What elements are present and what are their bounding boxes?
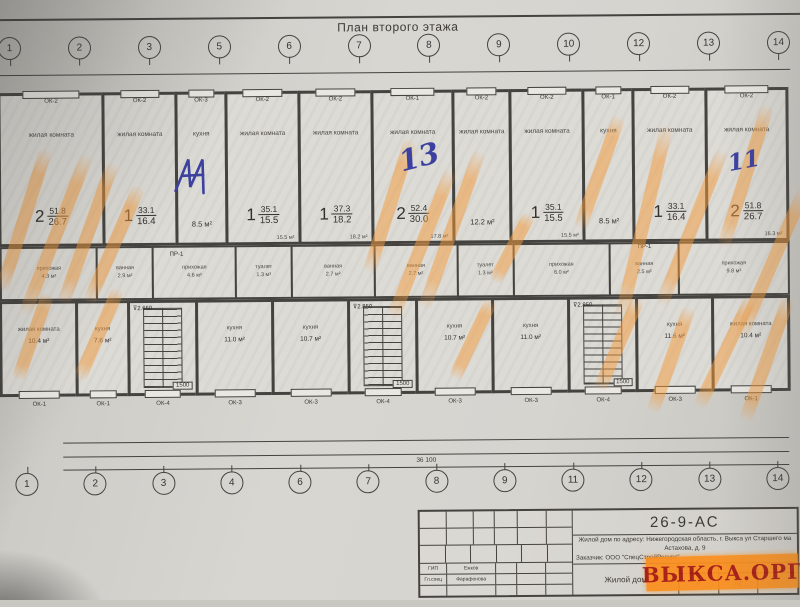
room-cell: ОК-2 жилая комната 1 35.115.5 15.5 м² bbox=[509, 89, 586, 244]
bottom-cell: кухня 11.0 м² ОК-3 bbox=[195, 299, 275, 396]
room-cell: ОК-2 жилая комната 1 33.116.4 bbox=[631, 88, 708, 243]
window-label: ОК-2 bbox=[256, 97, 270, 103]
room-sub-area: 18.2 м² bbox=[350, 234, 368, 240]
dimension-value bbox=[214, 63, 216, 73]
column-header bbox=[445, 546, 471, 562]
room-area: 10.7 м² bbox=[444, 335, 465, 342]
room-label: кухня bbox=[427, 322, 483, 331]
window-label: ОК-1 bbox=[601, 94, 615, 100]
room-sub-area: 16.3 м² bbox=[765, 231, 783, 237]
axis-row-bottom: 1234678911121314 bbox=[15, 467, 789, 496]
window bbox=[19, 391, 60, 399]
column-header bbox=[471, 546, 497, 562]
room-label: жилая комната bbox=[723, 320, 779, 329]
service-room-label: туалет1.3 м² bbox=[477, 263, 494, 279]
lintel-mark: ПР-1 bbox=[638, 244, 652, 250]
window-label: ОК-2 bbox=[540, 95, 554, 101]
dimension-value bbox=[260, 431, 262, 441]
column-header bbox=[547, 545, 572, 561]
general-notes bbox=[0, 502, 412, 505]
room-sub-area: 15.5 м² bbox=[561, 233, 579, 239]
service-room-label: прихожая4.6 м² bbox=[182, 265, 207, 281]
axis-circle: 4 bbox=[220, 471, 243, 494]
window-label: ОК-2 bbox=[663, 94, 677, 100]
room-area-note: 12.2 м² bbox=[470, 217, 494, 226]
window-label: ОК-1 bbox=[3, 402, 76, 409]
axis-circle: 2 bbox=[68, 36, 91, 59]
bottom-cell: кухня 11.6 м² ОК-3 bbox=[635, 296, 715, 393]
name: Фарафонова bbox=[447, 574, 496, 585]
dimension-value bbox=[392, 430, 394, 440]
room-label: жилая комната bbox=[108, 130, 172, 140]
dimension-value bbox=[357, 62, 359, 72]
role: ГИП bbox=[420, 563, 447, 573]
dimension-value bbox=[429, 62, 431, 72]
window-label: ОК-1 bbox=[79, 401, 128, 407]
dimension-value bbox=[788, 59, 790, 69]
note-line bbox=[0, 502, 412, 505]
window bbox=[655, 386, 696, 394]
watermark-badge: ВЫКСА.ОРГ bbox=[646, 554, 799, 592]
service-room-cell: прихожая4.3 м² bbox=[0, 246, 98, 301]
bottom-cell: ⊽2.850 1500 ОК-4 bbox=[347, 298, 419, 395]
dimension-value bbox=[285, 63, 287, 73]
role: Гл.спец bbox=[420, 574, 447, 584]
window-label: ОК-3 bbox=[495, 398, 568, 405]
kitchens-stairs-row: жилая комната 10.4 м² ОК-1 кухня 7.6 м² … bbox=[2, 295, 791, 397]
bottom-cell: жилая комната 10.4 м² ОК-1 bbox=[711, 295, 791, 392]
window bbox=[466, 87, 497, 95]
window bbox=[731, 385, 772, 393]
room-area: 11.0 м² bbox=[224, 337, 245, 344]
dimension-value bbox=[178, 64, 180, 74]
window-label: ОК-2 bbox=[44, 99, 58, 105]
dimension-value bbox=[716, 59, 718, 69]
landing-elevation: 1500 bbox=[393, 380, 412, 388]
room-areas: 1 37.318.2 bbox=[319, 203, 353, 225]
dimension-value bbox=[642, 442, 644, 452]
dimension-value bbox=[721, 427, 723, 437]
dimension-value bbox=[393, 62, 395, 72]
window-label: ОК-3 bbox=[199, 400, 272, 407]
window-label: ОК-4 bbox=[571, 397, 636, 404]
window bbox=[650, 86, 689, 94]
dimension-value bbox=[321, 63, 323, 73]
window-label: ОК-4 bbox=[131, 401, 196, 408]
room-areas: 2 52.430.0 bbox=[396, 203, 430, 225]
room-label: жилая комната bbox=[11, 326, 67, 335]
room-label: кухня bbox=[647, 321, 703, 330]
dimension-value bbox=[326, 431, 328, 441]
service-room-label: ванная2.7 м² bbox=[324, 264, 342, 280]
room-cell: ОК-1 кухня 8.5 м² bbox=[582, 88, 636, 242]
room-cell: ОК-2 жилая комната 1 37.318.2 18.2 м² bbox=[297, 90, 374, 245]
room-areas: 1 33.116.4 bbox=[123, 205, 157, 227]
signature-rows: ГИП Ежков Гл.спец Фарафонова bbox=[420, 562, 572, 596]
dimension-value bbox=[280, 445, 282, 455]
dimension-value bbox=[497, 443, 499, 453]
dimension-value bbox=[142, 64, 144, 74]
window bbox=[435, 387, 476, 395]
dimension-value bbox=[754, 427, 756, 437]
room-area: 10.7 м² bbox=[300, 336, 321, 343]
dimension-value bbox=[63, 433, 65, 443]
window-label: ОК-3 bbox=[639, 397, 712, 404]
elevation-mark: ⊽2.850 bbox=[353, 303, 372, 310]
drawing-sheet: План второго этажа 1235678910121314 ОК-2… bbox=[0, 0, 800, 607]
window bbox=[725, 85, 769, 93]
dimension-value bbox=[63, 447, 65, 457]
room-label: жилая комната bbox=[638, 126, 702, 136]
dimension-value bbox=[129, 432, 131, 442]
note-line bbox=[0, 502, 412, 505]
dimension-value bbox=[425, 430, 427, 440]
dimension-value bbox=[622, 428, 624, 438]
dimension-value bbox=[787, 441, 789, 451]
bottom-cell: ⊽2.650 1500 ОК-4 bbox=[127, 300, 199, 397]
pen-mark-11: 11 bbox=[726, 145, 762, 177]
document-number: 26-9-АС bbox=[573, 509, 797, 536]
service-room-cell: ванная2.7 м² bbox=[291, 244, 376, 299]
window-label: ОК-2 bbox=[329, 96, 343, 102]
service-room-label: ванная2.9 м² bbox=[116, 265, 134, 281]
room-area: 10.4 м² bbox=[740, 333, 761, 340]
room-label: жилая комната bbox=[19, 130, 83, 140]
room-label: жилая комната bbox=[715, 125, 779, 135]
landing-elevation: 1500 bbox=[613, 378, 632, 386]
axis-circle: 7 bbox=[347, 34, 370, 57]
axis-circle: 7 bbox=[357, 470, 380, 493]
dimension-value bbox=[162, 432, 164, 442]
axis-circle: 10 bbox=[557, 33, 580, 56]
window bbox=[23, 91, 80, 99]
column-header bbox=[522, 545, 548, 561]
dimension-value bbox=[195, 432, 197, 442]
axis-row-top: 1235678910121314 bbox=[0, 31, 790, 60]
dimension-value bbox=[688, 428, 690, 438]
service-room-label: прихожая9.8 м² bbox=[722, 261, 747, 277]
room-label: кухня bbox=[75, 325, 131, 334]
note-line bbox=[0, 502, 412, 505]
dimension-value bbox=[590, 428, 592, 438]
dimension-value bbox=[96, 432, 98, 442]
note-line bbox=[0, 502, 412, 505]
dimension-value bbox=[537, 61, 539, 71]
room-cell: ОК-2 жилая комната 2 51.826.7 bbox=[0, 92, 106, 247]
room-areas: 1 35.115.5 bbox=[531, 202, 565, 224]
dimension-value bbox=[680, 60, 682, 70]
axis-circle: 13 bbox=[697, 31, 720, 54]
window bbox=[316, 88, 355, 96]
dimension-value bbox=[501, 61, 503, 71]
axis-circle: 12 bbox=[627, 32, 650, 55]
apartment-rooms-row: ОК-2 жилая комната 2 51.826.7 ОК-2 жилая… bbox=[0, 87, 789, 247]
service-room-cell: прихожая4.6 м² bbox=[152, 245, 237, 300]
axis-circle: 5 bbox=[208, 35, 231, 58]
dimension-value bbox=[70, 65, 72, 75]
dimension-value bbox=[557, 429, 559, 439]
axis-circle: 2 bbox=[84, 472, 107, 495]
room-area: 10.4 м² bbox=[28, 338, 49, 345]
room-label: кухня bbox=[503, 322, 559, 331]
bottom-cell: кухня 11.0 м² ОК-3 bbox=[491, 297, 571, 394]
dimension-value bbox=[752, 59, 754, 69]
column-header bbox=[420, 546, 446, 562]
window-label: ОК-3 bbox=[194, 98, 208, 104]
dimension-value bbox=[524, 429, 526, 439]
lintel-mark: ПР-1 bbox=[170, 252, 184, 258]
dimension-value bbox=[715, 442, 717, 452]
name bbox=[447, 585, 496, 596]
room-area: 7.6 м² bbox=[94, 338, 112, 345]
room-label: кухня bbox=[206, 324, 262, 333]
axis-circle: 8 bbox=[417, 34, 440, 57]
note-line bbox=[0, 502, 412, 505]
service-room-cell: туалет1.3 м² bbox=[235, 245, 293, 299]
service-rooms-row: прихожая4.3 м² ванная2.9 м² прихожая4.6 … bbox=[2, 241, 790, 301]
service-room-label: туалет1.3 м² bbox=[255, 264, 272, 280]
signature-row bbox=[420, 585, 572, 596]
note-line bbox=[0, 502, 412, 505]
service-room-cell: прихожая6.0 м² bbox=[512, 242, 611, 297]
room-area-note: 8.5 м² bbox=[599, 216, 619, 225]
elevation-mark: ⊽2.650 bbox=[133, 305, 152, 312]
dimension-value bbox=[573, 61, 575, 71]
axis-circle: 12 bbox=[630, 468, 653, 491]
window bbox=[120, 90, 159, 98]
service-room-cell: туалет1.3 м² bbox=[456, 243, 514, 297]
project-address: Жилой дом по адресу: Нижегородская облас… bbox=[573, 534, 797, 554]
floor-plan: ОК-2 жилая комната 2 51.826.7 ОК-2 жилая… bbox=[0, 81, 790, 403]
bottom-cell: кухня 7.6 м² ОК-1 bbox=[75, 300, 130, 396]
bottom-cell: кухня 10.7 м² ОК-3 bbox=[415, 297, 495, 394]
landing-elevation: 1500 bbox=[173, 382, 192, 390]
room-cell: ОК-2 жилая комната 12.2 м² bbox=[451, 89, 513, 243]
note-line bbox=[0, 502, 412, 505]
window-label: ОК-3 bbox=[275, 399, 348, 406]
service-room-cell: ванная2.9 м² bbox=[96, 246, 154, 300]
window-label: ОК-2 bbox=[133, 98, 147, 104]
axis-circle: 3 bbox=[152, 472, 175, 495]
dimension-value bbox=[228, 431, 230, 441]
dimension-value bbox=[570, 443, 572, 453]
service-room-label: прихожая6.0 м² bbox=[549, 262, 574, 278]
dimension-value bbox=[465, 61, 467, 71]
room-label: жилая комната bbox=[381, 128, 445, 138]
window bbox=[89, 390, 116, 398]
axis-circle: 14 bbox=[766, 467, 789, 490]
dimension-value bbox=[34, 65, 36, 75]
dimension-value bbox=[208, 445, 210, 455]
room-areas: 2 51.826.7 bbox=[730, 200, 764, 222]
column-header bbox=[496, 545, 522, 561]
dimension-value bbox=[458, 430, 460, 440]
axis-circle: 1 bbox=[15, 473, 38, 496]
room-sub-area: 17.8 м² bbox=[430, 234, 448, 240]
room-areas: 1 33.116.4 bbox=[653, 201, 687, 223]
axis-circle: 3 bbox=[138, 36, 161, 59]
window bbox=[511, 387, 552, 395]
room-cell: ОК-2 жилая комната 1 33.116.4 bbox=[102, 92, 179, 247]
window-label: ОК-2 bbox=[740, 93, 754, 99]
window bbox=[188, 89, 214, 97]
window-label: ОК-1 bbox=[406, 96, 420, 102]
empty-row bbox=[420, 511, 572, 529]
axis-circle: 6 bbox=[278, 35, 301, 58]
note-line bbox=[0, 502, 412, 505]
service-room-label: прихожая4.3 м² bbox=[37, 266, 62, 282]
axis-circle: 9 bbox=[493, 469, 516, 492]
window bbox=[390, 88, 434, 96]
axis-circle: 14 bbox=[767, 31, 790, 54]
service-room-cell: ванная2.7 м² bbox=[373, 244, 458, 299]
axis-circle: 9 bbox=[487, 33, 510, 56]
window bbox=[145, 390, 181, 398]
dimension-value bbox=[249, 63, 251, 73]
dimension-value bbox=[655, 428, 657, 438]
axis-circle: 8 bbox=[425, 470, 448, 493]
dimension-value bbox=[359, 430, 361, 440]
room-sub-area: 15.5 м² bbox=[277, 235, 295, 241]
room-label: жилая комната bbox=[304, 128, 368, 138]
axis-circle: 1 bbox=[0, 37, 21, 60]
axis-circle: 11 bbox=[561, 469, 584, 492]
window bbox=[527, 87, 566, 95]
room-area-note: 8.5 м² bbox=[192, 219, 212, 228]
dimension-value bbox=[787, 427, 789, 437]
dimension-value bbox=[644, 60, 646, 70]
room-areas: 1 35.115.5 bbox=[246, 204, 280, 226]
window bbox=[243, 89, 282, 97]
room-area: 11.6 м² bbox=[664, 333, 685, 340]
room-label: жилая комната bbox=[450, 127, 514, 137]
header-row bbox=[420, 545, 572, 563]
axis-circle: 6 bbox=[288, 471, 311, 494]
service-room-label: ванная2.7 м² bbox=[407, 263, 425, 279]
room-areas: 2 51.826.7 bbox=[35, 206, 69, 228]
window bbox=[585, 386, 621, 394]
dimension-value bbox=[425, 444, 427, 454]
room-label: жилая комната bbox=[231, 129, 295, 139]
window bbox=[291, 389, 332, 397]
pen-scribble bbox=[172, 151, 218, 200]
dimension-value bbox=[491, 429, 493, 439]
dimension-row-top bbox=[0, 59, 790, 76]
window-label: ОК-3 bbox=[419, 398, 492, 405]
dimension-value bbox=[136, 446, 138, 456]
axis-circle: 13 bbox=[698, 467, 721, 490]
window-label: ОК-4 bbox=[351, 399, 416, 406]
empty-row bbox=[420, 528, 572, 546]
dimension-value bbox=[293, 431, 295, 441]
elevation-mark: ⊽2.850 bbox=[573, 301, 592, 308]
dimension-value bbox=[106, 64, 108, 74]
dimension-value bbox=[609, 60, 611, 70]
room-area: 11.0 м² bbox=[520, 334, 541, 341]
bottom-cell: кухня 10.7 м² ОК-3 bbox=[271, 298, 351, 395]
name: Ежков bbox=[447, 563, 496, 574]
bottom-cell: ⊽2.850 1500 ОК-4 bbox=[567, 296, 639, 393]
note-line bbox=[0, 502, 412, 505]
service-room-label: ванная2.5 м² bbox=[635, 261, 653, 277]
window-label: ОК-1 bbox=[715, 396, 788, 403]
bottom-cell: жилая комната 10.4 м² ОК-1 bbox=[0, 301, 79, 398]
note-line bbox=[0, 502, 412, 505]
window-label: ОК-2 bbox=[475, 95, 489, 101]
room-cell: ОК-2 жилая комната 1 35.115.5 15.5 м² bbox=[224, 91, 301, 246]
title-block-signature-table: ГИП Ежков Гл.спец Фарафонова bbox=[420, 511, 574, 596]
window bbox=[365, 388, 401, 396]
window bbox=[595, 86, 621, 94]
service-room-cell: прихожая9.8 м² bbox=[678, 241, 790, 296]
role bbox=[420, 586, 447, 596]
window bbox=[214, 389, 255, 397]
room-label: жилая комната bbox=[515, 127, 579, 137]
room-label: кухня bbox=[282, 323, 338, 332]
dimension-value bbox=[353, 444, 355, 454]
note-line bbox=[0, 502, 412, 505]
